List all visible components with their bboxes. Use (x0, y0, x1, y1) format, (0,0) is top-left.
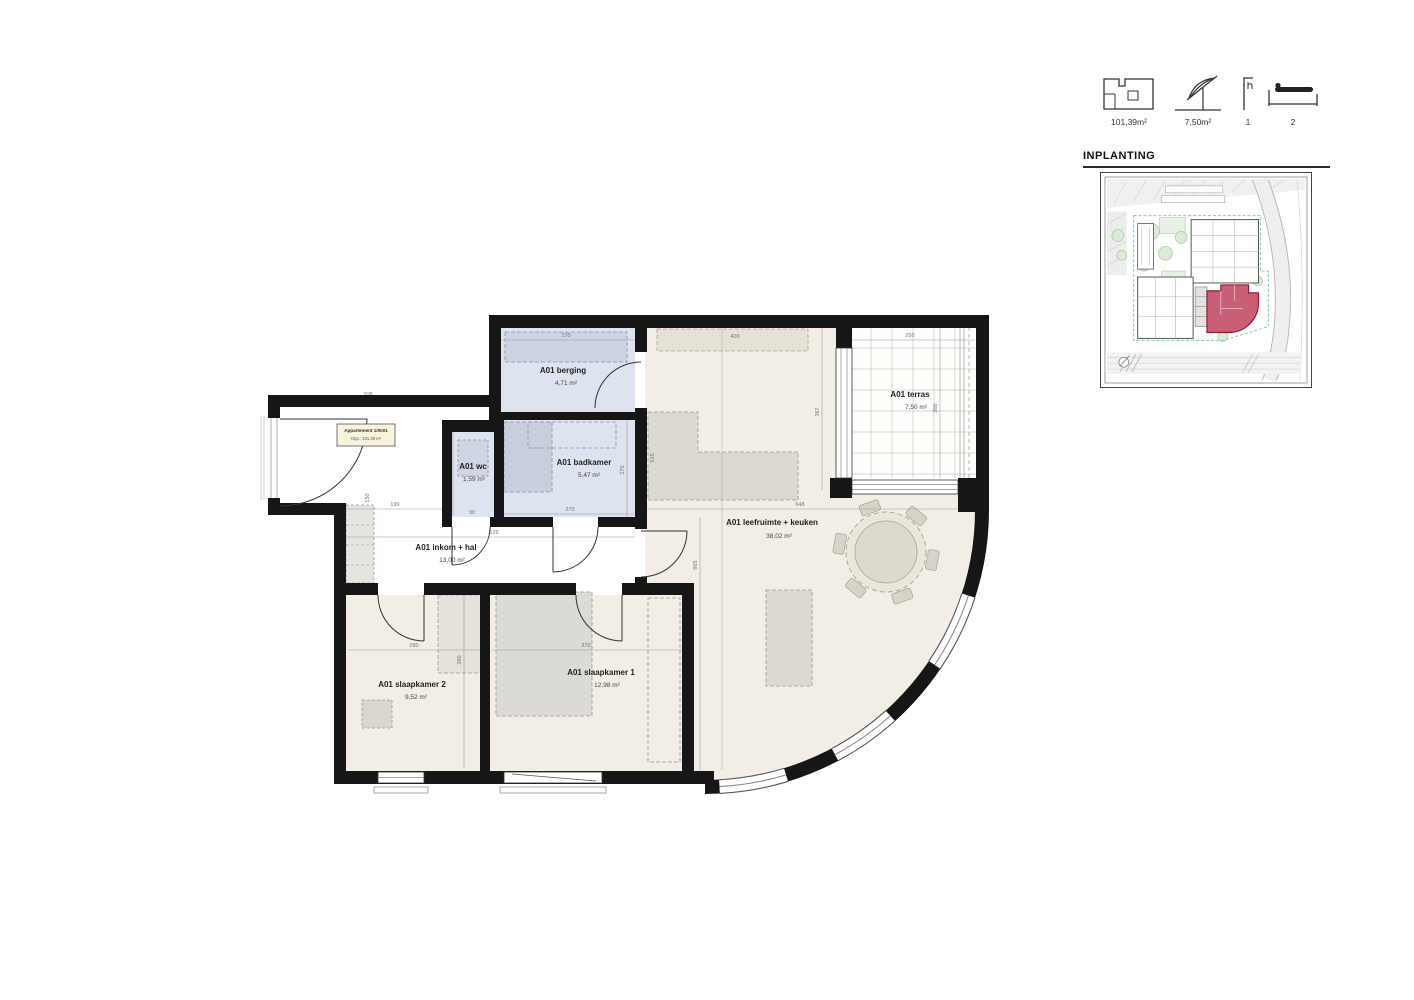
label-leefruimte: A01 leefruimte + keuken (726, 518, 818, 527)
dim-closet-height: 150 (365, 493, 371, 502)
dim-living-height: 865 (693, 560, 699, 569)
door-badkamer (553, 527, 598, 572)
legend-value-bedrooms: 2 (1291, 117, 1296, 127)
dim-terras-width: 250 (905, 333, 914, 339)
terras-sliding-door (852, 480, 958, 494)
page-canvas: 308 270 400 250 199 90 270 529 648 280 3… (0, 0, 1414, 1000)
bathroom-icon (1238, 72, 1258, 114)
legend-value-surface: 101,39m² (1111, 117, 1147, 127)
dim-kitchen-counter: 400 (730, 334, 739, 340)
window-terras-side (836, 348, 852, 478)
label-slaapkamer2: A01 slaapkamer 2 (378, 680, 446, 689)
road-bottom (1107, 352, 1301, 374)
dining-table-top (855, 521, 917, 583)
apartment-tag-line2: Opp.: 101,39 m² (351, 436, 382, 441)
bed (496, 592, 592, 716)
dim-s1-width: 370 (581, 643, 590, 649)
site-plan-map (1104, 176, 1308, 384)
dim-hall-width: 529 (489, 530, 498, 536)
area-badkamer: 5,47 m² (578, 472, 601, 479)
legend-item-bedrooms: 2 (1263, 72, 1323, 127)
apartment-tag-line1: Appartement 1/0001 (344, 428, 388, 433)
bedroom-bed-icon (1265, 72, 1321, 114)
parking-strip (1107, 212, 1127, 275)
dim-living-width: 648 (795, 502, 804, 508)
floor-plan: 308 270 400 250 199 90 270 529 648 280 3… (260, 300, 1000, 810)
area-slaapkamer1: 12,98 m² (594, 682, 620, 689)
label-slaapkamer1: A01 slaapkamer 1 (567, 668, 635, 677)
label-terras: A01 terras (890, 390, 930, 399)
legend-value-bathroom: 1 (1246, 117, 1251, 127)
area-wc: 1,59 m² (463, 476, 486, 483)
area-inkom: 13,00 m² (439, 557, 465, 564)
entrance-door-opening (261, 416, 277, 500)
sideboard (766, 590, 812, 686)
area-slaapkamer2: 9,52 m² (405, 694, 428, 701)
label-badkamer: A01 badkamer (557, 458, 612, 467)
inplanting-title: INPLANTING (1083, 150, 1330, 168)
kitchen-counter (657, 329, 808, 351)
dim-wc-width: 90 (469, 510, 475, 516)
dim-slaapkamer-depth: 360 (457, 655, 463, 664)
legend-item-bathroom: 1 (1237, 72, 1259, 127)
terrace-parasol-icon (1173, 72, 1223, 114)
legend-value-terrace: 7,50m² (1185, 117, 1211, 127)
dresser-s2 (362, 700, 392, 728)
hall-closet (346, 505, 374, 583)
label-inkom: A01 inkom + hal (415, 543, 476, 552)
apartment-tag: Appartement 1/0001 Opp.: 101,39 m² (337, 424, 395, 446)
label-berging: A01 berging (540, 366, 586, 375)
apartment-plan-icon (1101, 72, 1157, 114)
window-slaapkamer1 (500, 772, 606, 793)
dim-badkamer-width: 270 (565, 507, 574, 513)
legend: 101,39m² 7,50m² 1 (1097, 72, 1337, 134)
area-terras: 7,50 m² (905, 404, 928, 411)
window-slaapkamer2 (374, 772, 428, 793)
dim-terras-depth: 300 (933, 403, 939, 412)
inplanting-frame (1100, 172, 1312, 388)
area-leefruimte: 38,02 m² (766, 533, 792, 540)
dim-berging-width: 270 (561, 333, 570, 339)
label-wc: A01 wc (459, 462, 487, 471)
dim-island-length: 515 (650, 453, 656, 462)
legend-item-surface: 101,39m² (1097, 72, 1161, 127)
dim-badkamer-depth: 270 (620, 465, 626, 474)
dim-living-depth: 367 (815, 407, 821, 416)
area-berging: 4,71 m² (555, 380, 578, 387)
dim-s2-width: 280 (409, 643, 418, 649)
legend-item-terrace: 7,50m² (1169, 72, 1227, 127)
dim-hall-segment: 199 (390, 502, 399, 508)
